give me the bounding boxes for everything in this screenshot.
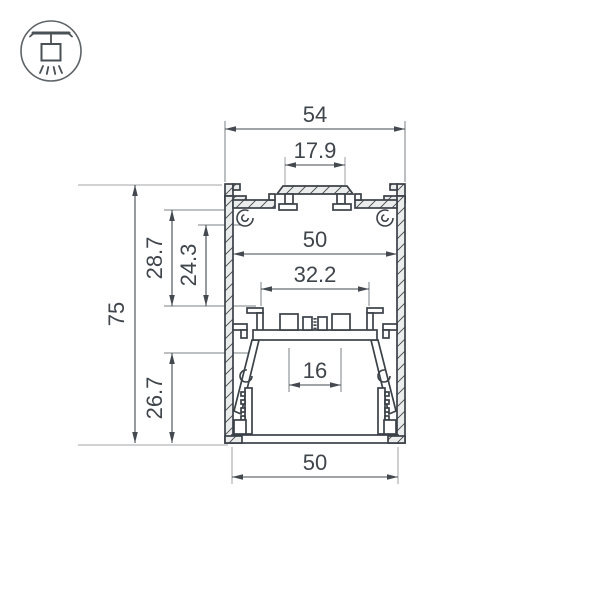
dim-inner-width-label: 50 <box>303 227 327 252</box>
dim-top-platform-width-label: 17.9 <box>294 138 337 163</box>
dimension-boss-depth: 24.3 <box>176 225 209 306</box>
profile-drawing-svg: 54 17.9 50 32.2 16 50 75 <box>0 0 600 600</box>
profile-cross-section <box>225 184 405 443</box>
dimension-lower-cavity-depth: 26.7 <box>142 353 175 443</box>
dim-overall-height-label: 75 <box>104 302 129 326</box>
screw-port-right <box>332 314 350 330</box>
screw-boss-top-left <box>237 210 253 226</box>
dimension-upper-cavity-depth: 28.7 <box>142 210 175 306</box>
icon-circle <box>21 21 81 81</box>
left-wall <box>225 196 233 443</box>
pendant-ceiling-mount-icon <box>21 21 81 81</box>
dimension-shelf-width: 32.2 <box>261 262 369 292</box>
pendant-lamp-glyph <box>30 33 72 74</box>
dim-upper-cavity-depth-label: 28.7 <box>142 237 167 280</box>
dim-screw-pitch-label: 16 <box>303 358 327 383</box>
dim-bottom-width-label: 50 <box>303 450 327 475</box>
dimension-top-platform-width: 17.9 <box>285 138 345 168</box>
dimension-overall-height: 75 <box>104 185 138 443</box>
technical-drawing-image: 54 17.9 50 32.2 16 50 75 <box>0 0 600 600</box>
screw-port-left <box>280 314 298 330</box>
dimension-outer-width: 54 <box>225 102 405 132</box>
dim-lower-cavity-depth-label: 26.7 <box>142 377 167 420</box>
led-platform <box>277 186 353 194</box>
dim-shelf-width-label: 32.2 <box>294 262 337 287</box>
screw-boss-top-right <box>377 210 393 226</box>
dimension-inner-width: 50 <box>233 227 397 257</box>
right-wall <box>397 196 405 443</box>
led-shelf <box>253 330 377 340</box>
dim-outer-width-label: 54 <box>303 102 327 127</box>
dim-boss-depth-label: 24.3 <box>176 244 201 287</box>
bottom-plate <box>232 435 398 443</box>
dimension-bottom-width: 50 <box>232 450 398 480</box>
dimension-screw-pitch: 16 <box>289 358 341 388</box>
